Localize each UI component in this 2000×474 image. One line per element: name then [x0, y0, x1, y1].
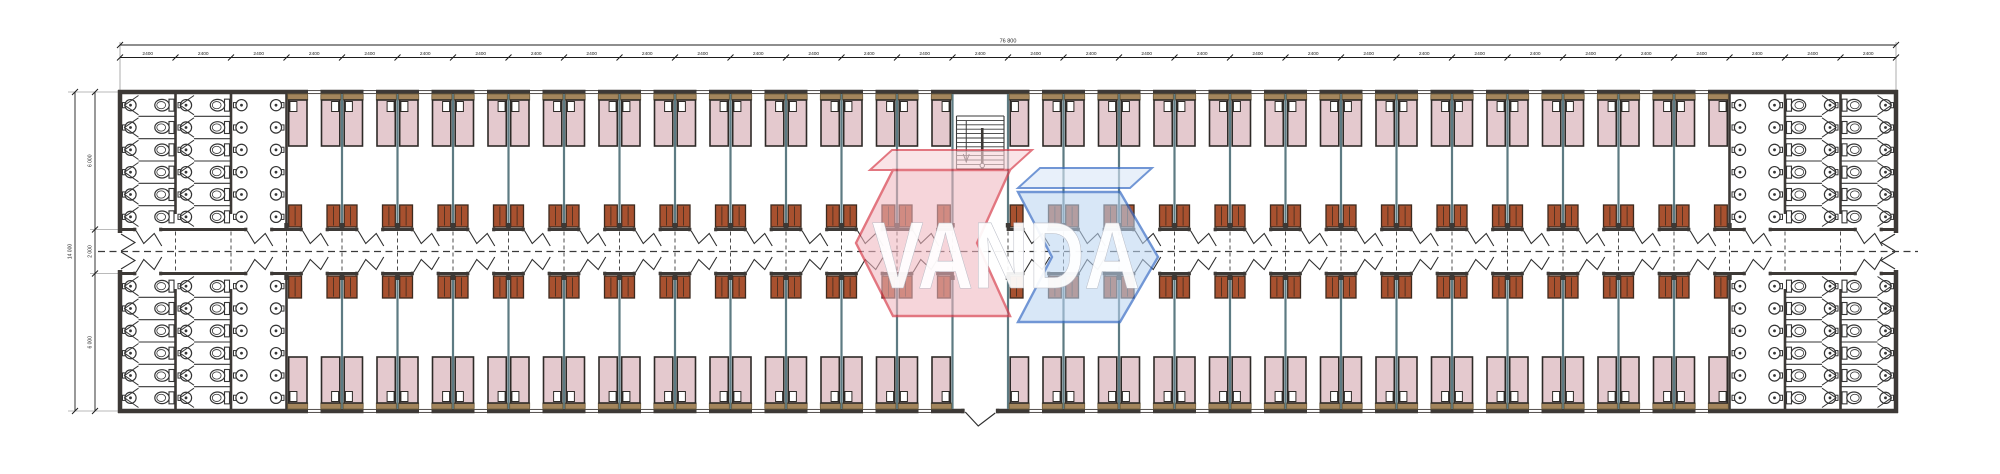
door-opening: [136, 228, 159, 232]
door-jamb: [355, 272, 358, 276]
door-jamb: [799, 272, 802, 276]
pillow: [456, 392, 463, 402]
sink-drain: [1884, 148, 1887, 151]
door-opening: [747, 272, 770, 276]
pillow: [387, 392, 394, 402]
door-jamb: [633, 272, 636, 276]
sink-drain: [1739, 148, 1742, 151]
headboard: [510, 94, 530, 100]
door-swing: [1468, 257, 1494, 272]
sink-drain: [1739, 126, 1742, 129]
bay-width-label: 2400: [919, 51, 930, 57]
door-swing: [1191, 257, 1217, 272]
door-jamb: [1521, 272, 1524, 276]
door-jamb: [1158, 228, 1161, 232]
door-jamb: [1880, 228, 1883, 232]
headboard: [876, 94, 896, 100]
pillow: [1331, 392, 1338, 402]
headboard: [1042, 94, 1062, 100]
pillow: [623, 392, 630, 402]
sink-drain: [185, 171, 188, 174]
door-jamb: [1769, 228, 1772, 232]
headboard: [321, 403, 341, 409]
pillow: [1442, 102, 1449, 112]
door-jamb: [355, 228, 358, 232]
bay-width-label: 2400: [864, 51, 875, 57]
door-opening: [303, 272, 326, 276]
door-swing: [358, 257, 384, 272]
headboard: [1287, 403, 1307, 409]
door-opening: [636, 272, 659, 276]
door-jamb: [855, 272, 858, 276]
sink-drain: [275, 126, 278, 129]
door-swing: [1746, 231, 1772, 246]
door-jamb: [825, 272, 828, 276]
sink-drain: [129, 171, 132, 174]
headboard: [399, 94, 419, 100]
door-jamb: [744, 228, 747, 232]
headboard: [1509, 403, 1529, 409]
door-jamb: [1380, 272, 1383, 276]
door-jamb: [1880, 272, 1883, 276]
door-jamb: [1299, 228, 1302, 232]
pillow: [1053, 392, 1060, 402]
pillow: [567, 392, 574, 402]
door-swing: [136, 257, 162, 272]
door-jamb: [1632, 272, 1635, 276]
door-jamb: [1410, 272, 1413, 276]
door-jamb: [411, 228, 414, 232]
door-jamb: [1354, 228, 1357, 232]
pillow: [789, 392, 796, 402]
pillow: [776, 392, 783, 402]
pillow: [789, 102, 796, 112]
pillow: [1109, 102, 1116, 112]
door-jamb: [1658, 272, 1661, 276]
sink-drain: [1739, 215, 1742, 218]
door-jamb: [659, 228, 662, 232]
sink-drain: [240, 193, 243, 196]
bay-width-label: 2400: [142, 51, 153, 57]
door-swing: [580, 231, 606, 246]
sink-drain: [185, 396, 188, 399]
bay-width-label: 2400: [697, 51, 708, 57]
headboard: [820, 403, 840, 409]
headboard: [1342, 94, 1362, 100]
sink-drain: [1829, 193, 1832, 196]
door-jamb: [326, 272, 329, 276]
pillow: [665, 392, 672, 402]
door-jamb: [522, 272, 525, 276]
pillow: [1011, 102, 1018, 112]
door-jamb: [1214, 272, 1217, 276]
door-jamb: [1410, 228, 1413, 232]
sink-drain: [1773, 285, 1776, 288]
sink-drain: [1884, 307, 1887, 310]
headboard: [343, 403, 363, 409]
door-opening: [1635, 228, 1658, 232]
pillow: [401, 392, 408, 402]
pillow: [1289, 102, 1296, 112]
sink-drain: [1884, 104, 1887, 107]
sink-drain: [1739, 396, 1742, 399]
door-swing: [136, 231, 162, 246]
door-jamb: [1158, 272, 1161, 276]
pillow: [831, 102, 838, 112]
door-jamb: [1325, 228, 1328, 232]
pillow: [1511, 392, 1518, 402]
door-opening: [358, 228, 381, 232]
sink-drain: [1884, 215, 1887, 218]
sink-drain: [129, 329, 132, 332]
headboard: [321, 94, 341, 100]
door-swing: [525, 257, 551, 272]
sink-drain: [1829, 104, 1832, 107]
door-jamb: [159, 228, 162, 232]
door-opening: [1413, 228, 1436, 232]
pillow: [332, 392, 339, 402]
sink-drain: [1773, 193, 1776, 196]
sink-drain: [1773, 396, 1776, 399]
pillow: [1233, 102, 1240, 112]
door-opening: [1857, 228, 1880, 232]
door-opening: [802, 228, 825, 232]
door-jamb: [159, 272, 162, 276]
headboard: [898, 94, 918, 100]
bay-width-label: 2400: [1086, 51, 1097, 57]
headboard: [376, 403, 396, 409]
sink-drain: [1773, 352, 1776, 355]
bay-width-label: 2400: [1807, 51, 1818, 57]
sink-drain: [240, 285, 243, 288]
headboard: [1398, 403, 1418, 409]
door-jamb: [437, 272, 440, 276]
pillow: [1719, 392, 1726, 402]
door-swing: [1302, 231, 1328, 246]
sink-drain: [129, 307, 132, 310]
pillow: [665, 102, 672, 112]
pillow: [1164, 392, 1171, 402]
headboard: [1597, 403, 1617, 409]
door-opening: [303, 228, 326, 232]
sink-drain: [240, 396, 243, 399]
pillow: [1275, 392, 1282, 402]
door-jamb: [492, 272, 495, 276]
bay-width-label: 2400: [1363, 51, 1374, 57]
door-opening: [1635, 272, 1658, 276]
bay-width-label: 2400: [642, 51, 653, 57]
sink-drain: [1773, 374, 1776, 377]
entrance-door-swing: [965, 412, 995, 426]
floor-plan-svg: 76 8002400240024002400240024002400240024…: [0, 0, 2000, 474]
pillow: [1178, 392, 1185, 402]
sink-drain: [1829, 374, 1832, 377]
door-jamb: [714, 272, 717, 276]
door-jamb: [1243, 228, 1246, 232]
pillow: [1677, 102, 1684, 112]
bay-width-label: 2400: [1308, 51, 1319, 57]
door-opening: [1413, 272, 1436, 276]
pillow: [609, 392, 616, 402]
door-opening: [525, 272, 548, 276]
pillow: [1331, 102, 1338, 112]
door-swing: [358, 231, 384, 246]
sink-drain: [275, 193, 278, 196]
headboard: [432, 94, 452, 100]
headboard: [1065, 403, 1085, 409]
door-jamb: [577, 272, 580, 276]
door-swing: [1524, 257, 1550, 272]
sink-drain: [185, 285, 188, 288]
watermark-right-top-face: [1018, 168, 1152, 188]
corridor-label: 2 000: [88, 245, 94, 258]
pillow: [1122, 392, 1129, 402]
headboard: [1597, 94, 1617, 100]
door-opening: [1746, 272, 1769, 276]
sink-drain: [240, 329, 243, 332]
sink-drain: [275, 148, 278, 151]
door-jamb: [1188, 272, 1191, 276]
door-jamb: [1769, 272, 1772, 276]
sink-drain: [1773, 148, 1776, 151]
headboard: [931, 403, 951, 409]
bay-width-label: 2400: [808, 51, 819, 57]
headboard: [343, 94, 363, 100]
sink-drain: [1884, 352, 1887, 355]
door-opening: [469, 272, 492, 276]
door-jamb: [1465, 272, 1468, 276]
sink-drain: [185, 126, 188, 129]
door-jamb: [1547, 272, 1550, 276]
headboard: [1098, 403, 1118, 409]
door-jamb: [1743, 272, 1746, 276]
door-jamb: [1632, 228, 1635, 232]
sink-drain: [275, 307, 278, 310]
pillow: [290, 392, 297, 402]
pillow: [609, 102, 616, 112]
bay-width-label: 2400: [1696, 51, 1707, 57]
headboard: [399, 403, 419, 409]
pillow: [512, 102, 519, 112]
corridor-end-door-swing: [121, 234, 135, 251]
door-swing: [1857, 231, 1883, 246]
headboard: [1098, 94, 1118, 100]
door-jamb: [270, 272, 273, 276]
headboard: [543, 403, 563, 409]
pillow: [845, 102, 852, 112]
sink-drain: [1829, 215, 1832, 218]
headboard: [565, 94, 585, 100]
door-opening: [580, 228, 603, 232]
sink-drain: [1829, 329, 1832, 332]
headboard: [765, 94, 785, 100]
door-jamb: [1243, 272, 1246, 276]
headboard: [709, 94, 729, 100]
door-jamb: [1269, 272, 1272, 276]
door-swing: [747, 257, 773, 272]
corridor-end-door-swing: [121, 252, 135, 269]
pillow: [900, 102, 907, 112]
headboard: [1375, 403, 1395, 409]
sink-drain: [1829, 352, 1832, 355]
pillow: [887, 102, 894, 112]
pillow: [554, 102, 561, 112]
door-opening: [1746, 228, 1769, 232]
headboard: [487, 94, 507, 100]
headboard: [1708, 94, 1728, 100]
pillow: [512, 392, 519, 402]
sink-drain: [1739, 104, 1742, 107]
headboard: [732, 403, 752, 409]
door-swing: [414, 231, 440, 246]
door-jamb: [1354, 272, 1357, 276]
pillow: [1344, 392, 1351, 402]
pillow: [1455, 102, 1462, 112]
headboard: [1486, 403, 1506, 409]
door-jamb: [300, 228, 303, 232]
sink-drain: [1739, 285, 1742, 288]
pillow: [1122, 102, 1129, 112]
pillow: [1566, 392, 1573, 402]
pillow: [678, 392, 685, 402]
bay-width-label: 2400: [364, 51, 375, 57]
headboard: [820, 94, 840, 100]
headboard: [1231, 94, 1251, 100]
door-opening: [691, 228, 714, 232]
door-swing: [469, 257, 495, 272]
pillow: [567, 102, 574, 112]
bay-width-label: 2400: [1585, 51, 1596, 57]
sink-drain: [1884, 329, 1887, 332]
door-jamb: [1436, 272, 1439, 276]
pillow: [1067, 392, 1074, 402]
headboard: [765, 403, 785, 409]
sink-drain: [275, 396, 278, 399]
door-opening: [747, 228, 770, 232]
headboard: [1375, 94, 1395, 100]
headboard: [1120, 403, 1140, 409]
sink-drain: [275, 215, 278, 218]
pillow: [734, 392, 741, 402]
pillow: [1553, 102, 1560, 112]
door-jamb: [1713, 272, 1716, 276]
door-swing: [469, 231, 495, 246]
door-jamb: [1687, 228, 1690, 232]
door-opening: [247, 228, 270, 232]
door-jamb: [244, 272, 247, 276]
headboard: [1009, 94, 1029, 100]
pillow: [290, 102, 297, 112]
sink-drain: [1829, 285, 1832, 288]
door-jamb: [133, 272, 136, 276]
sink-drain: [1884, 126, 1887, 129]
door-opening: [1191, 228, 1214, 232]
headboard: [621, 403, 641, 409]
door-swing: [1524, 231, 1550, 246]
bay-width-label: 2400: [586, 51, 597, 57]
door-opening: [414, 272, 437, 276]
sink-drain: [1773, 215, 1776, 218]
headboard: [1009, 403, 1029, 409]
watermark-left-top-face: [870, 150, 1032, 170]
pillow: [831, 392, 838, 402]
bay-width-label: 2400: [753, 51, 764, 57]
door-swing: [636, 231, 662, 246]
door-swing: [1746, 257, 1772, 272]
door-swing: [247, 231, 273, 246]
corridor-end-door-swing: [1881, 234, 1895, 251]
sink-drain: [240, 171, 243, 174]
pillow: [720, 392, 727, 402]
bay-width-label: 2400: [1141, 51, 1152, 57]
door-swing: [802, 257, 828, 272]
headboard: [709, 403, 729, 409]
pillow: [401, 102, 408, 112]
sink-drain: [185, 104, 188, 107]
sink-drain: [240, 374, 243, 377]
headboard: [1398, 94, 1418, 100]
headboard: [288, 403, 308, 409]
sink-drain: [1829, 148, 1832, 151]
pillow: [1386, 102, 1393, 112]
door-swing: [1579, 231, 1605, 246]
pillow: [900, 392, 907, 402]
headboard: [843, 94, 863, 100]
door-opening: [1857, 272, 1880, 276]
headboard: [676, 94, 696, 100]
sink-drain: [1773, 126, 1776, 129]
door-swing: [247, 257, 273, 272]
pillow: [1622, 392, 1629, 402]
headboard: [1176, 94, 1196, 100]
door-jamb: [659, 272, 662, 276]
door-swing: [525, 231, 551, 246]
headboard: [1675, 403, 1695, 409]
pillow: [554, 392, 561, 402]
door-opening: [1690, 228, 1713, 232]
pillow: [1400, 392, 1407, 402]
pillow: [942, 392, 949, 402]
headboard: [1708, 403, 1728, 409]
door-opening: [1246, 272, 1269, 276]
sink-drain: [1739, 329, 1742, 332]
door-jamb: [714, 228, 717, 232]
headboard: [1209, 94, 1229, 100]
sink-drain: [240, 307, 243, 310]
bay-width-label: 2400: [253, 51, 264, 57]
bay-width-label: 2400: [1252, 51, 1263, 57]
headboard: [1264, 403, 1284, 409]
pillow: [1289, 392, 1296, 402]
door-jamb: [1713, 228, 1716, 232]
headboard: [787, 403, 807, 409]
pillow: [1511, 102, 1518, 112]
headboard: [1153, 403, 1173, 409]
headboard: [1120, 94, 1140, 100]
pillow: [1677, 392, 1684, 402]
headboard: [1542, 94, 1562, 100]
door-jamb: [603, 228, 606, 232]
pillow: [1664, 392, 1671, 402]
door-opening: [802, 272, 825, 276]
door-opening: [525, 228, 548, 232]
headboard: [1620, 403, 1640, 409]
door-swing: [802, 231, 828, 246]
door-swing: [1302, 257, 1328, 272]
door-opening: [414, 228, 437, 232]
door-opening: [136, 272, 159, 276]
door-jamb: [522, 228, 525, 232]
